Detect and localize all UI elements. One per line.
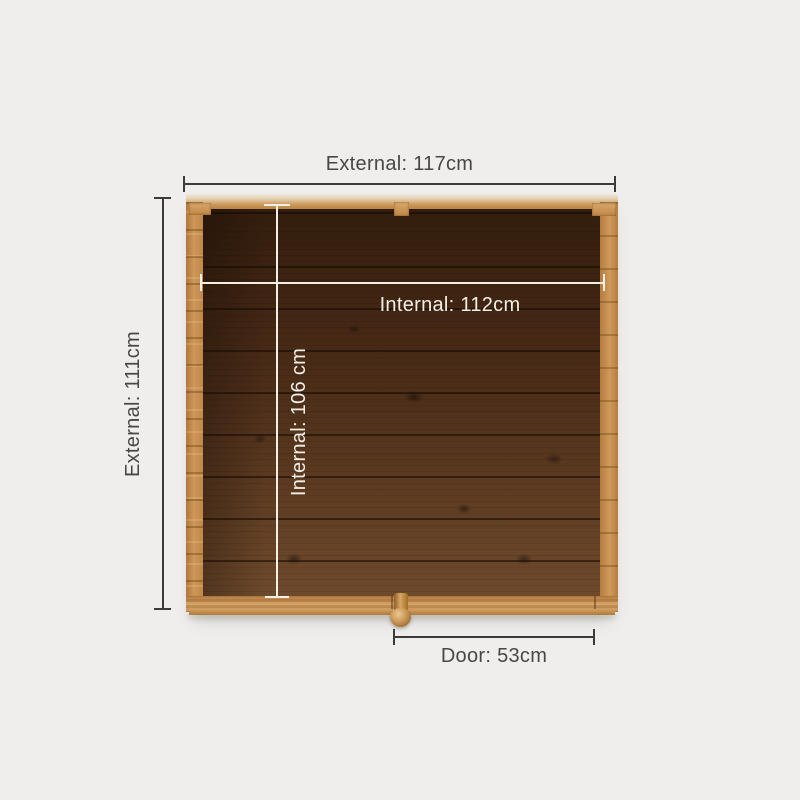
internal-depth-dimension-line bbox=[276, 204, 278, 598]
internal-width-dimension-line bbox=[202, 282, 604, 284]
external-depth-tick-bottom bbox=[154, 608, 171, 610]
door-width-label: Door: 53cm bbox=[393, 644, 595, 668]
internal-width-label: Internal: 112cm bbox=[330, 293, 570, 317]
product-dimension-diagram: External: 117cm External: 111cm Internal… bbox=[0, 0, 800, 800]
external-depth-dimension-line bbox=[162, 197, 164, 610]
internal-depth-tick-bottom bbox=[265, 596, 289, 598]
internal-depth-label: Internal: 106 cm bbox=[287, 322, 311, 522]
internal-width-tick-right bbox=[603, 274, 605, 291]
shed-floor-planks bbox=[202, 207, 602, 597]
corner-block-top-left bbox=[189, 203, 211, 215]
external-width-tick-left bbox=[183, 176, 185, 192]
external-width-label: External: 117cm bbox=[183, 152, 616, 176]
external-depth-tick-top bbox=[154, 197, 171, 199]
internal-width-tick-left bbox=[200, 274, 202, 291]
door-width-tick-right bbox=[593, 629, 595, 645]
external-depth-label: External: 111cm bbox=[121, 294, 145, 514]
joist-block-top-center bbox=[394, 202, 409, 216]
shed-right-wall-edge bbox=[600, 202, 618, 598]
internal-depth-tick-top bbox=[264, 204, 290, 206]
external-width-dimension-line bbox=[183, 183, 616, 185]
door-width-dimension-line bbox=[393, 636, 595, 638]
external-width-tick-right bbox=[614, 176, 616, 192]
door-width-tick-left bbox=[393, 629, 395, 645]
corner-block-top-right bbox=[592, 203, 616, 216]
shed-left-wall-edge bbox=[186, 202, 203, 598]
door-knob-icon bbox=[390, 608, 411, 627]
shed-top-view bbox=[186, 194, 618, 614]
